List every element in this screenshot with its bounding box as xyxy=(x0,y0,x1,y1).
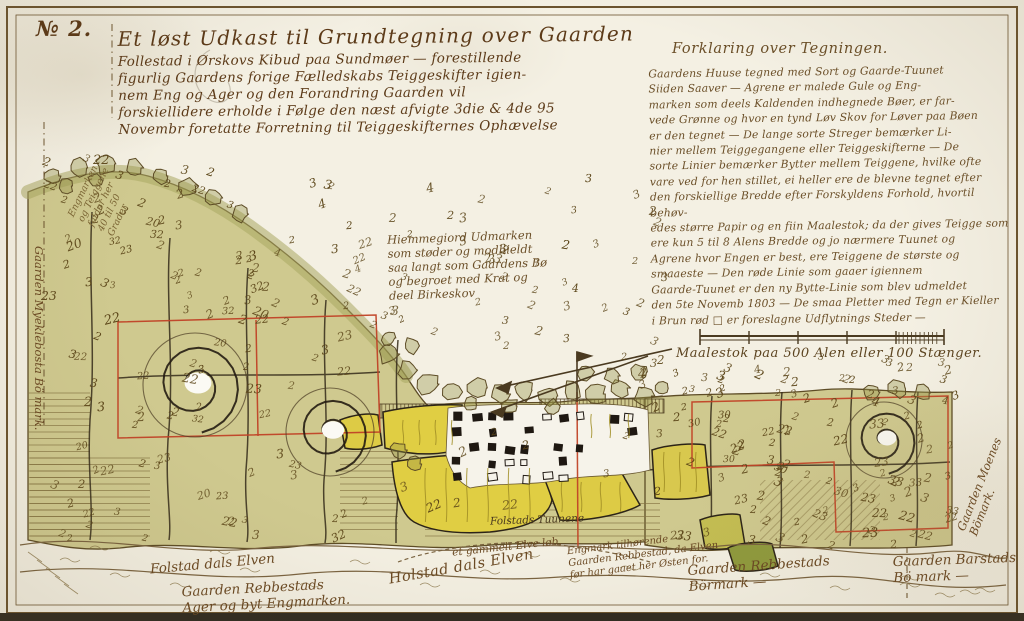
tree xyxy=(586,384,606,403)
tree xyxy=(443,384,463,400)
tree xyxy=(59,179,72,194)
tree xyxy=(655,382,668,394)
house xyxy=(543,472,553,480)
house xyxy=(525,427,534,433)
house xyxy=(452,457,459,464)
legend-text-line: den forskiellige Bredde efter Forskylden… xyxy=(650,185,1012,221)
house xyxy=(521,445,529,454)
sheet-number: № 2. xyxy=(36,16,92,42)
legend-text: Gaardens Huuse tegned med Sort og Gaarde… xyxy=(648,61,1014,328)
house xyxy=(505,459,514,466)
house xyxy=(452,428,461,436)
house xyxy=(577,412,585,420)
house xyxy=(489,429,496,437)
house xyxy=(453,473,461,481)
tree xyxy=(127,158,144,175)
tree xyxy=(205,190,222,205)
house xyxy=(504,412,513,420)
myklebostad-label: Gaarden Myeklebosta Bö mark. xyxy=(32,246,46,430)
house xyxy=(576,445,582,452)
tree xyxy=(406,338,420,355)
tree xyxy=(914,384,931,399)
house xyxy=(487,473,497,482)
house xyxy=(610,415,618,423)
house xyxy=(554,444,563,451)
tree xyxy=(381,332,396,345)
house xyxy=(454,412,462,420)
tree xyxy=(417,375,439,395)
house xyxy=(505,446,515,454)
map-title-line: Et løst Udkast til Grundtegning over Gaa… xyxy=(117,21,677,52)
house xyxy=(488,443,496,450)
house xyxy=(559,457,567,465)
house xyxy=(489,461,496,468)
scale-bar xyxy=(700,329,944,345)
house xyxy=(521,460,527,466)
legend-heading: Forklaring over Tegningen. xyxy=(672,40,888,58)
scan-edge-shadow xyxy=(0,613,1024,621)
house xyxy=(469,443,479,451)
map-scan-page: { "frame": { "number_label": "№ 2." }, "… xyxy=(0,0,1024,621)
tree xyxy=(467,378,487,398)
flag xyxy=(577,352,591,361)
house xyxy=(559,475,568,482)
barstad-label: Gaarden BarstadsBö mark — xyxy=(892,550,1016,586)
tree xyxy=(464,396,476,410)
house xyxy=(473,414,483,422)
scale-label: Maalestok paa 500 Alen eller 100 Stænger… xyxy=(676,346,982,362)
map-title: Et løst Udkast til Grundtegning over Gaa… xyxy=(117,21,678,138)
tree xyxy=(408,456,422,471)
tree xyxy=(631,364,648,380)
house xyxy=(543,414,552,420)
house xyxy=(560,414,569,422)
outfield-note: Hiemmegiord Udmarkensom støder og modhie… xyxy=(387,227,548,303)
